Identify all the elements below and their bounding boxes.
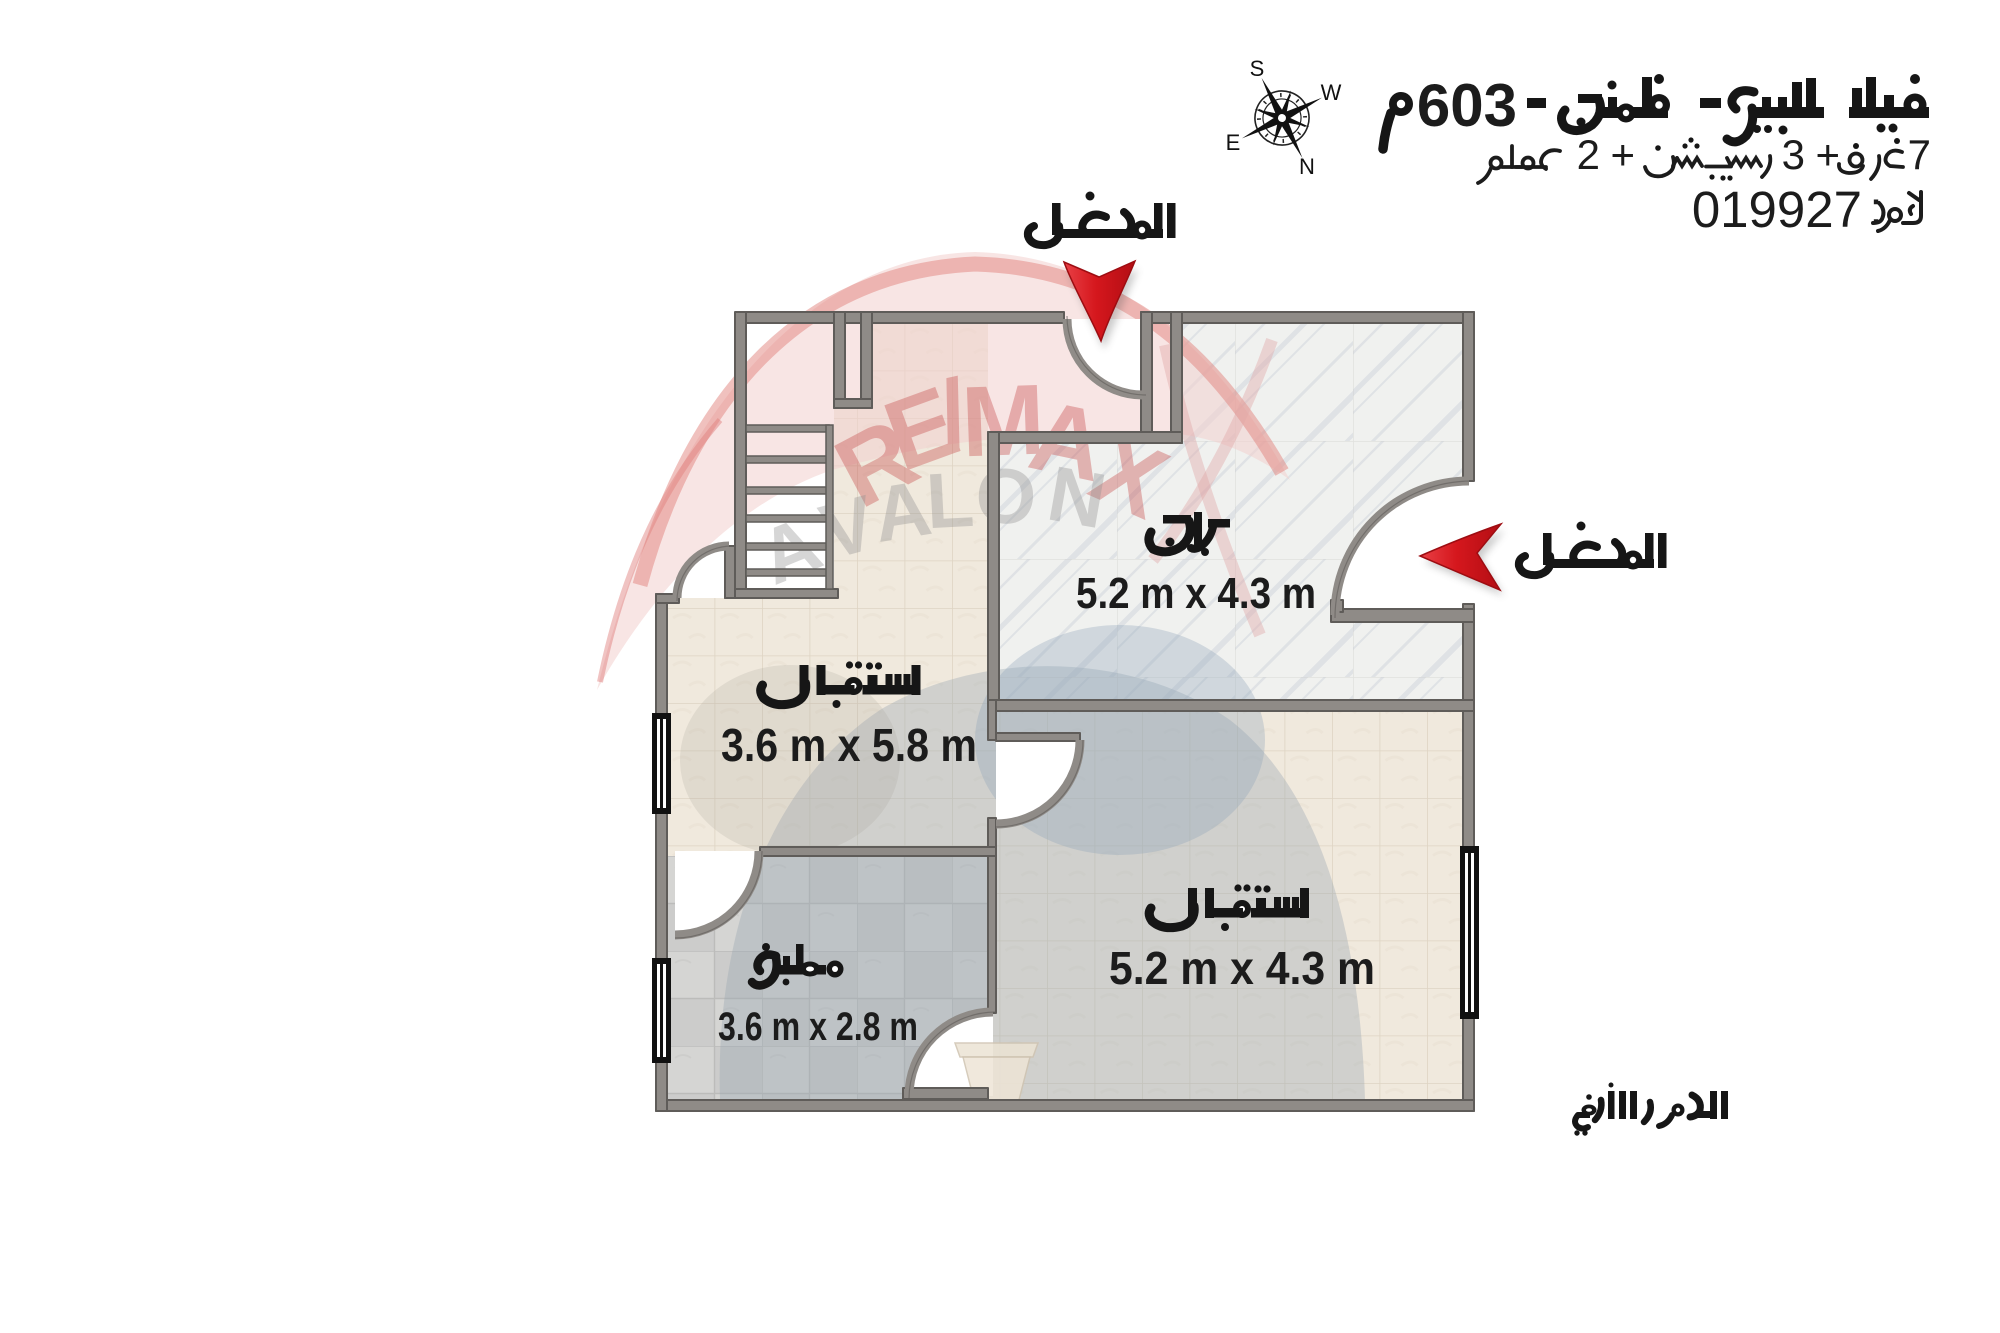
svg-text:W: W <box>1321 80 1342 105</box>
svg-text:+: + <box>1815 131 1840 178</box>
svg-text:2: 2 <box>1577 131 1600 178</box>
svg-text:3: 3 <box>1782 131 1805 178</box>
svg-text:N: N <box>1299 154 1315 179</box>
svg-text:3.6 m x 2.8 m: 3.6 m x 2.8 m <box>718 1005 918 1049</box>
svg-text:5.2 m x 4.3 m: 5.2 m x 4.3 m <box>1076 569 1316 618</box>
svg-text:S: S <box>1250 56 1265 81</box>
svg-text:O: O <box>973 450 1038 541</box>
svg-text:3.6 m x 5.8 m: 3.6 m x 5.8 m <box>721 719 977 771</box>
svg-text:603: 603 <box>1417 72 1517 139</box>
svg-text:E: E <box>1226 130 1241 155</box>
svg-text:7: 7 <box>1908 131 1931 178</box>
svg-text:5.2 m x 4.3 m: 5.2 m x 4.3 m <box>1109 942 1375 994</box>
svg-text:019927: 019927 <box>1692 181 1862 238</box>
svg-text:+: + <box>1610 131 1635 178</box>
svg-text:L: L <box>924 455 976 545</box>
